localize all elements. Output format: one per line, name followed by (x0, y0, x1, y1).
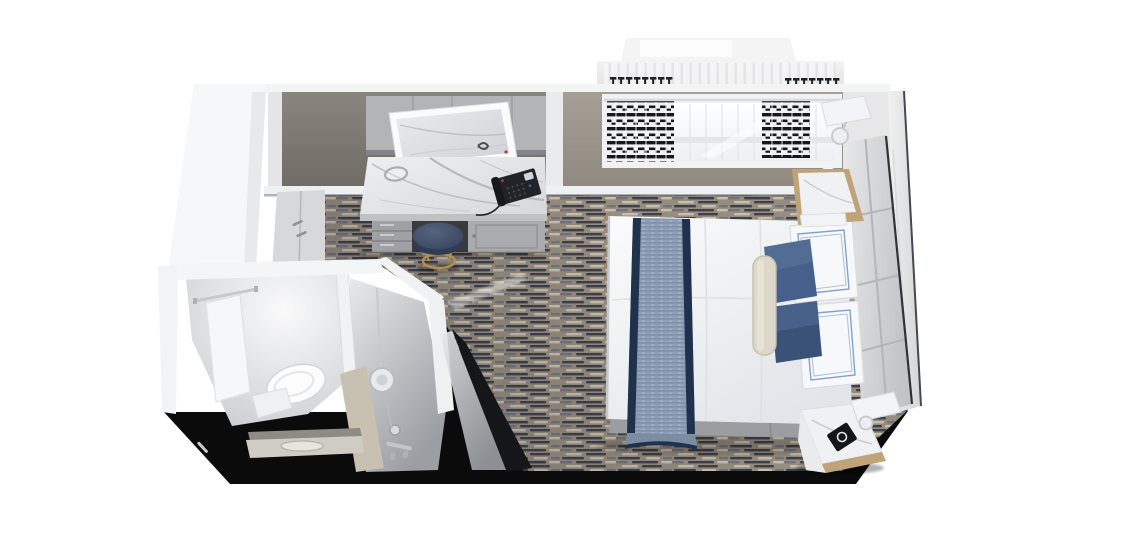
floorplan-canvas (0, 0, 1132, 560)
shower-head-center (377, 375, 388, 386)
towel-bar-mount (193, 298, 197, 304)
stateroom-floorplan-render (0, 0, 1132, 560)
wall-cut-top-strip (264, 84, 890, 93)
desk-cabinet-knob (472, 234, 475, 237)
bolster-highlight (757, 260, 764, 351)
closet-doors (272, 190, 325, 271)
nightstand-upper-drawer (800, 213, 847, 227)
bed-runner (625, 218, 697, 450)
wall-pilaster-mid (546, 92, 563, 192)
vanity-desk-area (360, 96, 547, 273)
window-bay (602, 94, 842, 168)
towel-bar-mount (254, 286, 258, 292)
bolster-pillow (753, 256, 776, 355)
mirror-reflection-light (504, 150, 507, 153)
vanity-sink-cut (246, 428, 364, 458)
desk-cabinet (468, 221, 545, 252)
desk-front-edge (360, 214, 547, 221)
sink-basin (281, 441, 323, 451)
sconce-lower-globe (860, 417, 873, 430)
overhang-highlight (640, 40, 732, 57)
stool-seat (413, 223, 463, 250)
desk-under-shadow (360, 252, 547, 257)
sconce-upper-globe (832, 128, 848, 144)
wall-pilaster-left (268, 92, 282, 192)
curtain-left (607, 101, 674, 162)
